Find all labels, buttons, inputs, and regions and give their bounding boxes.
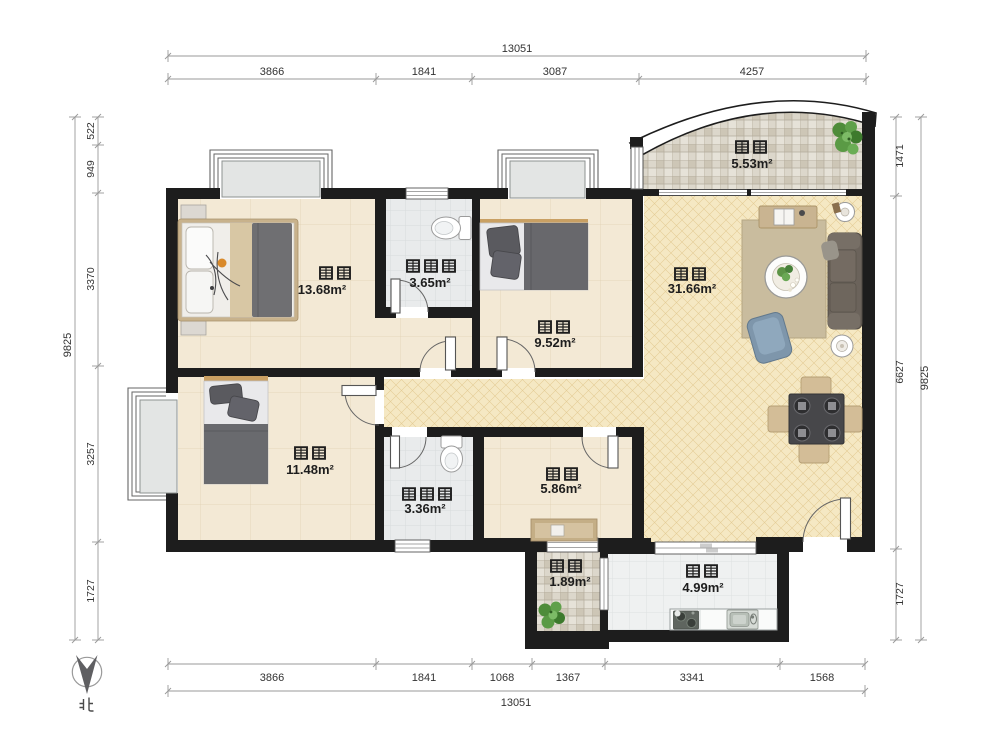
svg-text:13051: 13051 [501, 697, 532, 709]
svg-text:1841: 1841 [412, 66, 436, 78]
svg-text:949: 949 [85, 160, 97, 178]
svg-text:3257: 3257 [85, 442, 97, 466]
svg-text:1.89m²: 1.89m² [549, 574, 591, 589]
svg-text:1568: 1568 [810, 672, 834, 684]
svg-text:1367: 1367 [556, 672, 580, 684]
svg-text:3087: 3087 [543, 66, 567, 78]
svg-text:3.65m²: 3.65m² [409, 275, 451, 290]
svg-text:9825: 9825 [919, 366, 931, 390]
svg-text:1727: 1727 [85, 579, 97, 603]
svg-text:3341: 3341 [680, 672, 704, 684]
svg-text:3866: 3866 [260, 672, 284, 684]
svg-text:3.36m²: 3.36m² [404, 501, 446, 516]
svg-text:5.53m²: 5.53m² [731, 156, 773, 171]
svg-text:4.99m²: 4.99m² [682, 580, 724, 595]
svg-text:9825: 9825 [62, 333, 74, 357]
svg-text:1068: 1068 [490, 672, 514, 684]
svg-text:13.68m²: 13.68m² [298, 282, 347, 297]
svg-text:6627: 6627 [894, 360, 906, 384]
svg-text:522: 522 [85, 122, 97, 140]
svg-text:13051: 13051 [502, 43, 533, 55]
svg-text:3866: 3866 [260, 66, 284, 78]
svg-text:4257: 4257 [740, 66, 764, 78]
svg-text:3370: 3370 [85, 267, 97, 291]
svg-text:5.86m²: 5.86m² [540, 481, 582, 496]
svg-text:1727: 1727 [894, 582, 906, 606]
svg-text:9.52m²: 9.52m² [534, 335, 576, 350]
svg-text:1841: 1841 [412, 672, 436, 684]
svg-text:1471: 1471 [894, 144, 906, 168]
svg-text:31.66m²: 31.66m² [668, 281, 717, 296]
svg-text:11.48m²: 11.48m² [286, 462, 334, 477]
